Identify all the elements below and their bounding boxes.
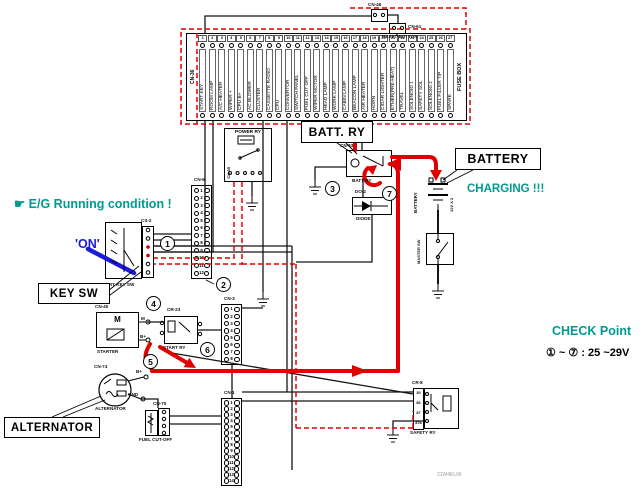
fuse-label: CABIN LAMP bbox=[342, 49, 349, 112]
fuse-strip: 19 HORN bbox=[369, 35, 379, 119]
fuse-strip: 18 AIR HEATER bbox=[360, 35, 370, 119]
pin-number: 8 bbox=[230, 443, 232, 447]
fuse-strip: 10 CONVERTOR bbox=[284, 35, 294, 119]
fuse-pin-bottom bbox=[333, 113, 338, 118]
diode-label: DIODE bbox=[356, 217, 371, 222]
start-relay-label: START RY bbox=[163, 346, 185, 351]
fuse-pin-bottom bbox=[257, 113, 262, 118]
fuse-pin-top bbox=[362, 43, 367, 48]
pin-row: 4 bbox=[222, 327, 241, 334]
pin-number: 7 bbox=[230, 437, 232, 441]
key-on-note: 'ON' bbox=[75, 237, 100, 251]
pin-row: 7 bbox=[222, 349, 241, 356]
fuse-label: CONVERTOR bbox=[285, 49, 292, 112]
fuse-label: AC BLOWER bbox=[247, 49, 254, 112]
pin-row: 3 bbox=[192, 202, 211, 210]
checkpoint-2: 2 bbox=[216, 277, 231, 292]
fuse-strip: 27 SPARE bbox=[445, 35, 455, 119]
pin-dot bbox=[204, 248, 209, 253]
fuse-pin-top bbox=[238, 43, 243, 48]
fuse-label: WORK LAMP bbox=[332, 49, 339, 112]
fuse-pin-bottom bbox=[200, 113, 205, 118]
fuse-pin-bottom bbox=[305, 113, 310, 118]
fuse-strip: 7 CLUSTER bbox=[255, 35, 265, 119]
fuse-label: SOLENOID 1 bbox=[409, 49, 416, 112]
running-condition-note: ☛ E/G Running condition ! bbox=[14, 196, 172, 211]
checkpoint-5: 5 bbox=[143, 354, 158, 369]
fuse-label: TRAVEL bbox=[399, 49, 406, 112]
fuse-strip: 11 SWITCH PANEL bbox=[293, 35, 303, 119]
pin-dot bbox=[234, 448, 239, 453]
fuse-number: 9 bbox=[274, 35, 283, 42]
master-switch bbox=[426, 233, 454, 265]
pin-dot bbox=[234, 335, 239, 340]
pin-dot bbox=[194, 263, 199, 268]
starter-pin-b-label: B+ bbox=[140, 335, 146, 340]
fuse-pin-bottom bbox=[295, 113, 300, 118]
starter-pin-m-label: M bbox=[141, 317, 145, 322]
pin-dot bbox=[224, 400, 229, 405]
fuse-label: CLUSTER bbox=[256, 49, 263, 112]
connector-cn1: 1234567891011121314 bbox=[221, 398, 242, 486]
pin-number: 11 bbox=[229, 461, 233, 465]
fuse-pin-bottom bbox=[410, 113, 415, 118]
fuse-strip: 22 TRAVEL bbox=[398, 35, 408, 119]
fuse-strip: 5 CPU B+ bbox=[236, 35, 246, 119]
pin-row: 6 bbox=[222, 342, 241, 349]
fuse-pin-bottom bbox=[210, 113, 215, 118]
pin-dot bbox=[234, 418, 239, 423]
connector-cn70 bbox=[158, 408, 170, 436]
fuse-strip: 24 SAFETY SOL bbox=[417, 35, 427, 119]
pin-row: 5 bbox=[222, 335, 241, 342]
fuse-label: HORN bbox=[371, 49, 378, 112]
fuse-number: 27 bbox=[446, 35, 455, 42]
diode-connector-label: DO-2 bbox=[355, 190, 366, 195]
battery-relay-connector-label: CN-33 bbox=[340, 144, 353, 149]
starter-motor-symbol: M bbox=[97, 315, 138, 324]
pin-dot bbox=[234, 314, 239, 319]
fuse-label: FUEL CUT OFF bbox=[304, 49, 311, 112]
pin-number: 5 bbox=[230, 425, 232, 429]
fuse-label: A/C HEATER bbox=[218, 49, 225, 112]
pin-dot bbox=[224, 357, 229, 362]
fuse-pin-top bbox=[372, 43, 377, 48]
pin-dot bbox=[234, 321, 239, 326]
pin-number: 6 bbox=[230, 343, 232, 347]
pin-number: 8 bbox=[200, 241, 202, 245]
fuse-pin-bottom bbox=[381, 113, 386, 118]
pin-number: 6 bbox=[230, 431, 232, 435]
fuse-strip: 16 CABIN LAMP bbox=[341, 35, 351, 119]
alternator-pin-gnd-label: GND bbox=[128, 393, 138, 398]
fuse-number: 8 bbox=[265, 35, 274, 42]
pin-number: 13 bbox=[229, 473, 234, 477]
pin-number: 1 bbox=[230, 401, 232, 405]
fuse-strip: 23 SOLENOID 1 bbox=[407, 35, 417, 119]
pin-row: 10 bbox=[192, 255, 211, 263]
pin-row: 2 bbox=[222, 313, 241, 320]
fuse-pin-bottom bbox=[438, 113, 443, 118]
fuse-pin-top bbox=[381, 43, 386, 48]
pin-dot bbox=[224, 442, 229, 447]
master-switch-label: MASTER SW bbox=[417, 234, 421, 264]
pin-number: 7 bbox=[200, 234, 202, 238]
pin-number: 9 bbox=[200, 249, 202, 253]
pin-number: 7 bbox=[230, 350, 232, 354]
fuse-box-connector-label: CN-36 bbox=[188, 35, 198, 119]
fuse-strips: 1 START KEY 2 ROOM LAMP 3 A/C HEATER 4 bbox=[198, 35, 455, 119]
checkpoint-4: 4 bbox=[146, 296, 161, 311]
fuse-number: 25 bbox=[427, 35, 436, 42]
pin-dot bbox=[204, 196, 209, 201]
relay-pin-label: 30 bbox=[416, 392, 420, 396]
pin-dot bbox=[194, 226, 199, 231]
fuse-pin-bottom bbox=[391, 113, 396, 118]
pin-dot bbox=[224, 418, 229, 423]
key-sw-callout: KEY SW bbox=[38, 283, 110, 304]
fuse-label: WIPER MOTOR bbox=[313, 49, 320, 112]
pin-dot bbox=[224, 406, 229, 411]
fuse-strip: 12 FUEL CUT OFF bbox=[303, 35, 313, 119]
pin-dot bbox=[234, 460, 239, 465]
fuse-strip: 9 CPU bbox=[274, 35, 284, 119]
relay-pin-label: 87 bbox=[416, 412, 420, 416]
pin-dot bbox=[234, 454, 239, 459]
pin-number: 5 bbox=[200, 219, 202, 223]
pin-row: 4 bbox=[192, 210, 211, 218]
fuse-strip: 26 FUEL FILLER T/P bbox=[436, 35, 446, 119]
pin-number: 6 bbox=[200, 226, 202, 230]
fuse-number: 4 bbox=[227, 35, 236, 42]
battery-vertical-label: BATTERY bbox=[414, 183, 419, 213]
fuse-pin-top bbox=[400, 43, 405, 48]
fuse-strip: 13 WIPER MOTOR bbox=[312, 35, 322, 119]
fuse-label: HEAD LAMP bbox=[323, 49, 330, 112]
fuse-strip: 15 WORK LAMP bbox=[331, 35, 341, 119]
pin-dot bbox=[234, 357, 239, 362]
connector-cr8: 30868787a bbox=[413, 388, 424, 430]
pin-row: 8 bbox=[222, 356, 241, 363]
pin-dot bbox=[194, 211, 199, 216]
fuse-pin-bottom bbox=[448, 113, 453, 118]
alternator-small-label: ALTERNATOR bbox=[95, 407, 126, 412]
pin-number: 3 bbox=[230, 322, 232, 326]
pin-number: 14 bbox=[229, 479, 234, 483]
pin-dot bbox=[234, 472, 239, 477]
pin-dot bbox=[204, 241, 209, 246]
pin-dot bbox=[204, 211, 209, 216]
fuse-strip: 17 BEACON LAMP bbox=[350, 35, 360, 119]
pin-number: 12 bbox=[199, 271, 204, 275]
fuse-strip: 6 AC BLOWER bbox=[246, 35, 256, 119]
wiring-diagram-page: CN-36 1 START KEY 2 ROOM LAMP 3 A/C HEAT… bbox=[0, 0, 642, 493]
pin-row: 7 bbox=[192, 232, 211, 240]
connector-cn61 bbox=[389, 23, 406, 34]
pin-dot bbox=[194, 256, 199, 261]
pin-number: 4 bbox=[230, 419, 232, 423]
battery-relay bbox=[346, 150, 392, 177]
fuse-label: START KEY bbox=[199, 49, 206, 112]
check-point-title: CHECK Point bbox=[552, 324, 631, 338]
power-relay-title: POWER RY bbox=[225, 130, 271, 135]
pin-row: 5 bbox=[192, 217, 211, 225]
pin-dot bbox=[204, 263, 209, 268]
fuse-box-label: FUSE BOX bbox=[455, 35, 465, 119]
pin-row: 3 bbox=[222, 320, 241, 327]
fuse-pin-top bbox=[429, 43, 434, 48]
fuel-cutoff-box bbox=[145, 410, 158, 436]
fuse-pin-top bbox=[448, 43, 453, 48]
alternator-callout: ALTERNATOR bbox=[4, 417, 100, 438]
pin-dot bbox=[224, 454, 229, 459]
fuse-pin-top bbox=[314, 43, 319, 48]
battery-callout: BATTERY bbox=[455, 148, 541, 170]
pin-dot bbox=[234, 466, 239, 471]
pin-dot bbox=[234, 307, 239, 312]
pin-dot bbox=[234, 406, 239, 411]
pin-dot bbox=[234, 350, 239, 355]
fuse-pin-bottom bbox=[343, 113, 348, 118]
pin-dot bbox=[224, 460, 229, 465]
connector-cn3-label: CN-3 bbox=[224, 297, 235, 302]
pin-dot bbox=[194, 248, 199, 253]
pin-number: 1 bbox=[200, 189, 202, 193]
safety-relay bbox=[424, 388, 459, 429]
pin-row: 11 bbox=[192, 262, 211, 270]
pin-dot bbox=[234, 400, 239, 405]
fuse-number: 15 bbox=[331, 35, 340, 42]
pin-dot bbox=[194, 233, 199, 238]
fuse-strip: 20 CIGAR LIGHTER bbox=[379, 35, 389, 119]
checkpoint-3: 3 bbox=[325, 181, 340, 196]
fuse-label: FUEL FILLER T/P bbox=[437, 49, 444, 112]
pin-dot bbox=[234, 412, 239, 417]
fuse-pin-bottom bbox=[276, 113, 281, 118]
pin-dot bbox=[224, 472, 229, 477]
pin-dot bbox=[204, 203, 209, 208]
pin-dot bbox=[194, 271, 199, 276]
fuse-label: WIPER + bbox=[228, 49, 235, 112]
pin-dot bbox=[194, 203, 199, 208]
connector-cn46-label: CN-46 bbox=[368, 3, 381, 8]
fuse-pin-bottom bbox=[400, 113, 405, 118]
fuse-pin-bottom bbox=[238, 113, 243, 118]
pin-dot bbox=[234, 424, 239, 429]
fuse-pin-bottom bbox=[372, 113, 377, 118]
connector-cr8-label: CR-8 bbox=[412, 381, 423, 386]
fuse-pin-top bbox=[267, 43, 272, 48]
power-relay-connector-label: CN-35 bbox=[226, 167, 231, 179]
pin-dot bbox=[224, 314, 229, 319]
pin-number: 10 bbox=[199, 256, 204, 260]
fuse-pin-top bbox=[210, 43, 215, 48]
pin-dot bbox=[204, 226, 209, 231]
fuse-label: CPU B+ bbox=[237, 49, 244, 112]
pin-dot bbox=[234, 442, 239, 447]
connector-cn61-label: CN-61 bbox=[408, 25, 421, 30]
connector-cs2 bbox=[142, 226, 154, 278]
fuse-pin-bottom bbox=[314, 113, 319, 118]
starter-connector-label: CN-40 bbox=[95, 305, 108, 310]
fuse-label: SWITCH PANEL bbox=[294, 49, 301, 112]
pin-dot bbox=[234, 343, 239, 348]
fuse-pin-top bbox=[333, 43, 338, 48]
checkpoint-6: 6 bbox=[200, 342, 215, 357]
fuel-cutoff-label: FUEL CUT-OFF bbox=[139, 438, 172, 443]
fuse-pin-top bbox=[257, 43, 262, 48]
fuse-pin-top bbox=[200, 43, 205, 48]
pin-dot bbox=[224, 350, 229, 355]
pin-dot bbox=[234, 478, 239, 483]
pin-number: 2 bbox=[230, 407, 232, 411]
fuse-label: SOLENOID 2 bbox=[428, 49, 435, 112]
fuse-number: 11 bbox=[293, 35, 302, 42]
fuse-number: 3 bbox=[217, 35, 226, 42]
fuse-number: 6 bbox=[246, 35, 255, 42]
fuse-pin-bottom bbox=[229, 113, 234, 118]
fuse-label: AIR HEATER bbox=[361, 49, 368, 112]
pin-dot bbox=[194, 218, 199, 223]
checkpoint-1: 1 bbox=[160, 236, 175, 251]
fuse-pin-top bbox=[410, 43, 415, 48]
fuse-number: 1 bbox=[198, 35, 207, 42]
fuse-pin-bottom bbox=[362, 113, 367, 118]
fuse-strip: 14 HEAD LAMP bbox=[322, 35, 332, 119]
battery-spec-label: 12V X 2 bbox=[450, 184, 454, 212]
fuse-label: SAFETY SOL bbox=[418, 49, 425, 112]
fuse-number: 24 bbox=[417, 35, 426, 42]
fuse-pin-bottom bbox=[219, 113, 224, 118]
pin-row: 8 bbox=[192, 240, 211, 248]
connector-cn6: 123456789101112 bbox=[191, 185, 212, 279]
pin-row: 12 bbox=[192, 270, 211, 278]
fuse-number: 17 bbox=[351, 35, 360, 42]
pin-row: 1 bbox=[222, 306, 241, 313]
fuse-number: 19 bbox=[370, 35, 379, 42]
fuse-strip: 25 SOLENOID 2 bbox=[426, 35, 436, 119]
fuse-pin-top bbox=[305, 43, 310, 48]
fuse-strip: 4 WIPER + bbox=[227, 35, 237, 119]
pin-dot bbox=[224, 448, 229, 453]
fuse-label: CPU bbox=[275, 49, 282, 112]
fuse-pin-top bbox=[419, 43, 424, 48]
checkpoint-7: 7 bbox=[382, 186, 397, 201]
pin-row: 9 bbox=[192, 247, 211, 255]
pin-dot bbox=[224, 321, 229, 326]
fuse-pin-bottom bbox=[419, 113, 424, 118]
fuse-pin-bottom bbox=[286, 113, 291, 118]
fuse-pin-top bbox=[248, 43, 253, 48]
fuse-pin-top bbox=[324, 43, 329, 48]
pin-number: 2 bbox=[230, 315, 232, 319]
pin-dot bbox=[234, 430, 239, 435]
fuse-pin-top bbox=[391, 43, 396, 48]
fuse-pin-bottom bbox=[353, 113, 358, 118]
fuse-label: CIGAR LIGHTER bbox=[380, 49, 387, 112]
fuse-label: CASSETTE RADIO bbox=[266, 49, 273, 112]
fuse-strip: 8 CASSETTE RADIO bbox=[265, 35, 275, 119]
pin-dot bbox=[224, 343, 229, 348]
pin-dot bbox=[194, 188, 199, 193]
pin-row: 2 bbox=[192, 195, 211, 203]
fuse-pin-top bbox=[286, 43, 291, 48]
pin-dot bbox=[204, 188, 209, 193]
safety-relay-label: SAFETY RY bbox=[410, 431, 436, 436]
battery-relay-label: BATT RY bbox=[352, 179, 371, 184]
connector-cs2-label: CS-2 bbox=[141, 219, 151, 224]
pin-number: 11 bbox=[199, 264, 203, 268]
connector-cn46 bbox=[371, 9, 388, 22]
fuse-number: 14 bbox=[322, 35, 331, 42]
fuse-label: SPARE bbox=[447, 49, 454, 112]
pin-number: 3 bbox=[200, 204, 202, 208]
starter-box: M bbox=[96, 312, 139, 348]
fuse-strip: 1 START KEY bbox=[198, 35, 208, 119]
pin-number: 2 bbox=[200, 196, 202, 200]
pin-number: 4 bbox=[200, 211, 202, 215]
fuse-label: ROOM LAMP bbox=[209, 49, 216, 112]
fuse-number: 12 bbox=[303, 35, 312, 42]
start-relay-connector-label: CR-23 bbox=[167, 308, 180, 313]
fuse-number: 5 bbox=[236, 35, 245, 42]
fuse-number: 2 bbox=[208, 35, 217, 42]
fuse-pin-bottom bbox=[429, 113, 434, 118]
pin-dot bbox=[224, 307, 229, 312]
fuse-number: 16 bbox=[341, 35, 350, 42]
pin-number: 9 bbox=[230, 449, 232, 453]
reset-button-label: RESET BUTTON bbox=[382, 35, 418, 40]
pin-dot bbox=[224, 328, 229, 333]
connector-cn70-label: CN-70 bbox=[153, 402, 166, 407]
pin-dot bbox=[204, 271, 209, 276]
fuse-pin-top bbox=[229, 43, 234, 48]
watermark: 21W4EL06 bbox=[437, 472, 462, 478]
pin-row: 14 bbox=[222, 478, 241, 484]
power-relay: POWER RY CN-35 bbox=[224, 128, 272, 182]
connector-cn3: 12345678 bbox=[221, 304, 242, 365]
pin-dot bbox=[224, 436, 229, 441]
fuse-number: 13 bbox=[312, 35, 321, 42]
pin-dot bbox=[234, 328, 239, 333]
pin-number: 12 bbox=[229, 467, 234, 471]
pin-row: 1 bbox=[192, 187, 211, 195]
fuse-number: 18 bbox=[360, 35, 369, 42]
pin-dot bbox=[194, 241, 199, 246]
relay-pin-label: 86 bbox=[416, 402, 420, 406]
fuse-number: 10 bbox=[284, 35, 293, 42]
pin-dot bbox=[224, 412, 229, 417]
pin-dot bbox=[224, 424, 229, 429]
pin-number: 8 bbox=[230, 357, 232, 361]
fuse-strip: 2 ROOM LAMP bbox=[208, 35, 218, 119]
pin-number: 5 bbox=[230, 336, 232, 340]
pin-row: 6 bbox=[192, 225, 211, 233]
connector-cn6-label: CN-6 bbox=[194, 178, 205, 183]
fuse-pin-top bbox=[295, 43, 300, 48]
pin-number: 1 bbox=[230, 307, 232, 311]
fuse-pin-bottom bbox=[248, 113, 253, 118]
pin-dot bbox=[204, 218, 209, 223]
fuse-pin-bottom bbox=[267, 113, 272, 118]
pin-dot bbox=[204, 256, 209, 261]
pin-dot bbox=[224, 478, 229, 483]
relay-pin-label: 87a bbox=[415, 422, 421, 426]
fuse-number: 26 bbox=[436, 35, 445, 42]
pin-dot bbox=[234, 436, 239, 441]
pin-dot bbox=[224, 430, 229, 435]
fuse-strip: 21 ETHER(PRE-HEAT) bbox=[388, 35, 398, 119]
